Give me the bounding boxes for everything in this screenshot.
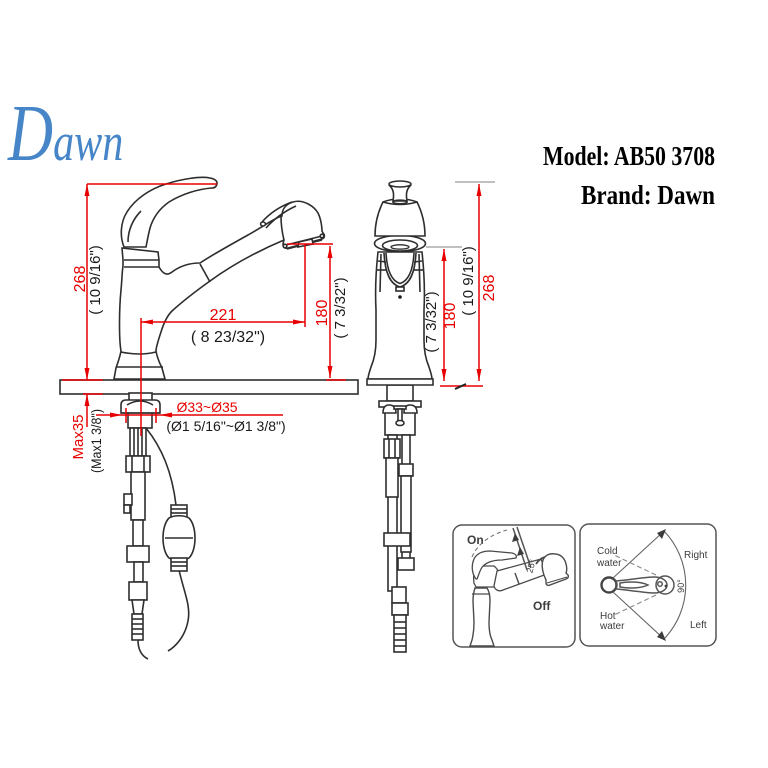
svg-text:Right: Right bbox=[684, 550, 708, 561]
svg-text:water: water bbox=[599, 621, 625, 632]
svg-text:Max35: Max35 bbox=[70, 414, 87, 459]
svg-text:Model: AB50 3708: Model: AB50 3708 bbox=[543, 141, 715, 171]
svg-text:( 10 9/16"): ( 10 9/16") bbox=[87, 245, 104, 315]
svg-text:90°: 90° bbox=[676, 579, 686, 593]
svg-text:268: 268 bbox=[481, 275, 498, 302]
svg-text:(Ø1 5/16"~Ø1 3/8"): (Ø1 5/16"~Ø1 3/8") bbox=[166, 418, 285, 434]
svg-text:On: On bbox=[467, 533, 484, 547]
svg-text:Ø33~Ø35: Ø33~Ø35 bbox=[176, 399, 237, 415]
svg-text:180: 180 bbox=[314, 300, 331, 327]
svg-text:Off: Off bbox=[533, 599, 551, 613]
svg-text:( 10 9/16"): ( 10 9/16") bbox=[460, 246, 477, 316]
svg-text:Brand: Dawn: Brand: Dawn bbox=[581, 180, 715, 210]
svg-text:( 7 3/32"): ( 7 3/32") bbox=[423, 291, 440, 352]
svg-text:Cold: Cold bbox=[597, 546, 618, 557]
svg-text:( 7 3/32"): ( 7 3/32") bbox=[332, 277, 349, 338]
svg-text:(Max1 3/8"): (Max1 3/8") bbox=[88, 409, 104, 473]
svg-text:221: 221 bbox=[210, 307, 237, 324]
svg-text:( 8 23/32"): ( 8 23/32") bbox=[191, 329, 265, 346]
svg-text:Left: Left bbox=[690, 620, 707, 631]
svg-text:180: 180 bbox=[442, 303, 459, 330]
svg-text:water: water bbox=[596, 558, 622, 569]
